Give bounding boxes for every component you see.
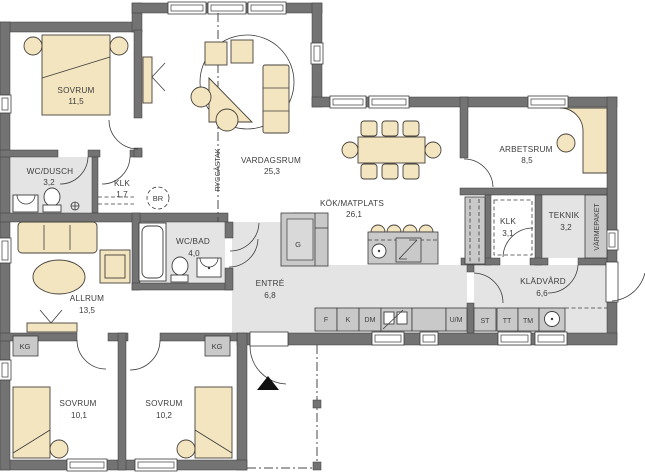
room-area-entre: 6,8: [264, 291, 276, 300]
room-area-teknik: 3,2: [560, 223, 572, 232]
room-area-allrum: 13,5: [79, 306, 95, 315]
kitchen-counter: [315, 308, 467, 331]
window: [311, 43, 323, 64]
room-label-klk2: KLK: [500, 217, 516, 226]
kg-label-right: KG: [212, 342, 223, 351]
room-label-klk1: KLK: [114, 179, 130, 188]
room-area-wc-bad: 4,0: [188, 249, 200, 258]
entrance-door: [250, 332, 288, 384]
room-label-allrum: ALLRUM: [70, 294, 104, 303]
room-label-teknik: TEKNIK: [549, 211, 580, 220]
room-label-kok: KÖK/MATPLATS: [320, 198, 384, 208]
porch: [247, 345, 321, 470]
room-label-arbetsrum: ARBETSRUM: [499, 145, 552, 154]
varmepaket-label: VÄRMEPAKET: [593, 203, 601, 251]
room-label-sovrum2: SOVRUM: [59, 399, 96, 408]
window: [0, 238, 11, 263]
window: [535, 332, 567, 345]
room-label-sovrum1: SOVRUM: [57, 86, 94, 95]
room-label-wc-bad: WC/BAD: [176, 237, 210, 246]
appliance-um: U/M: [450, 317, 463, 324]
livingroom-furniture: [191, 35, 294, 133]
allrum-furniture: [18, 222, 130, 332]
wardrobe-g-label: G: [295, 240, 301, 249]
floor-plan-drawing: SOVRUM 11,5 WC/DUSCH 3,2 KLK 1,7 VARDAGS…: [0, 0, 645, 475]
room-label-sovrum3: SOVRUM: [145, 399, 182, 408]
window: [606, 230, 618, 250]
entrance-marker: [257, 376, 279, 390]
wardrobe-g: [281, 213, 328, 266]
window: [372, 332, 404, 345]
appliance-tt: TT: [503, 318, 512, 325]
window: [420, 332, 438, 345]
room-area-arbetsrum: 8,5: [521, 156, 533, 165]
room-area-klk2: 3,1: [502, 229, 514, 238]
room-label-wc-dusch: WC/DUSCH: [27, 167, 74, 176]
appliance-k: K: [346, 317, 351, 324]
room-area-wc-dusch: 3,2: [43, 178, 55, 187]
appliance-tm: TM: [523, 318, 533, 325]
kitchen-island: [368, 197, 485, 264]
room-label-vardagsrum: VARDAGSRUM: [241, 156, 301, 165]
kg-label-left: KG: [20, 342, 31, 351]
office-furniture: [557, 108, 607, 173]
bedroom2-furniture: [13, 387, 68, 458]
dining-furniture: [342, 121, 441, 179]
bedroom3-furniture: [177, 387, 232, 458]
window: [528, 96, 568, 108]
window: [208, 2, 246, 14]
room-area-klk1: 1,7: [116, 190, 128, 199]
window: [248, 2, 286, 14]
window: [369, 96, 409, 108]
window: [0, 360, 11, 380]
appliance-st: ST: [481, 318, 491, 325]
smoke-detector-label: BR: [153, 194, 164, 203]
room-area-sovrum2: 10,1: [71, 411, 87, 420]
floor-plan: SOVRUM 11,5 WC/DUSCH 3,2 KLK 1,7 VARDAGS…: [0, 0, 645, 475]
window: [67, 459, 107, 471]
room-area-kladvard: 6,6: [536, 289, 548, 298]
room-area-vardagsrum: 25,3: [264, 167, 280, 176]
room-label-kladvard: KLÄDVÅRD: [520, 276, 566, 286]
room-area-kok: 26,1: [346, 210, 362, 219]
appliance-f: F: [324, 317, 328, 324]
room-area-sovrum3: 10,2: [156, 411, 172, 420]
window: [498, 332, 531, 345]
room-label-entre: ENTRÉ: [256, 278, 285, 288]
window: [168, 2, 206, 14]
room-area-sovrum1: 11,5: [68, 97, 84, 106]
ridge-label: RYGGÅSTAK: [213, 148, 222, 191]
window: [330, 96, 366, 108]
appliance-dm: DM: [365, 317, 376, 324]
window: [0, 95, 11, 113]
window: [135, 459, 177, 471]
bedroom1-furniture: [24, 35, 165, 115]
side-door: [606, 262, 645, 302]
